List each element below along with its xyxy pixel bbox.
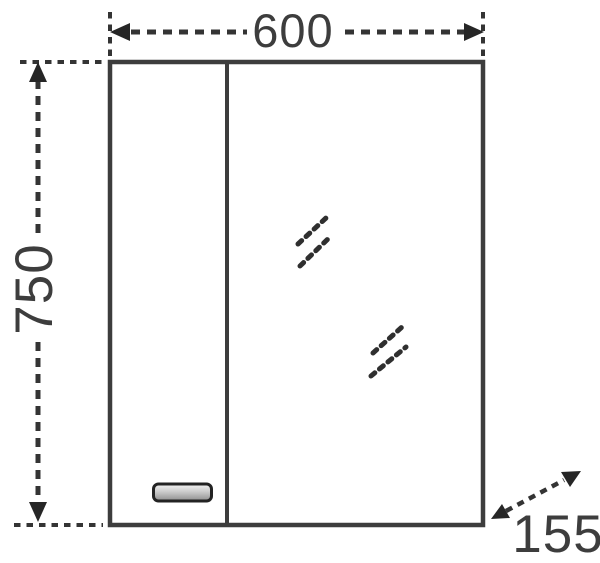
depth-dimension-label: 155 xyxy=(512,505,600,563)
up-arrowhead-icon xyxy=(29,62,47,82)
width-dimension: 600 xyxy=(110,4,484,57)
height-dimension-label: 750 xyxy=(5,243,64,334)
left-arrowhead-icon xyxy=(110,23,130,41)
depth-dimension: 155 xyxy=(491,471,600,563)
cabinet-outline xyxy=(110,62,483,525)
cabinet-dimension-diagram: 600 750 155 xyxy=(0,0,600,563)
door-handle xyxy=(154,484,212,501)
diagonal-arrowhead-icon xyxy=(561,471,581,487)
cabinet-front-view xyxy=(110,62,483,525)
down-arrowhead-icon xyxy=(29,502,47,522)
dimension-drawing-canvas: 600 750 155 xyxy=(0,0,600,563)
width-dimension-label: 600 xyxy=(252,4,333,57)
height-dimension: 750 xyxy=(5,62,103,525)
